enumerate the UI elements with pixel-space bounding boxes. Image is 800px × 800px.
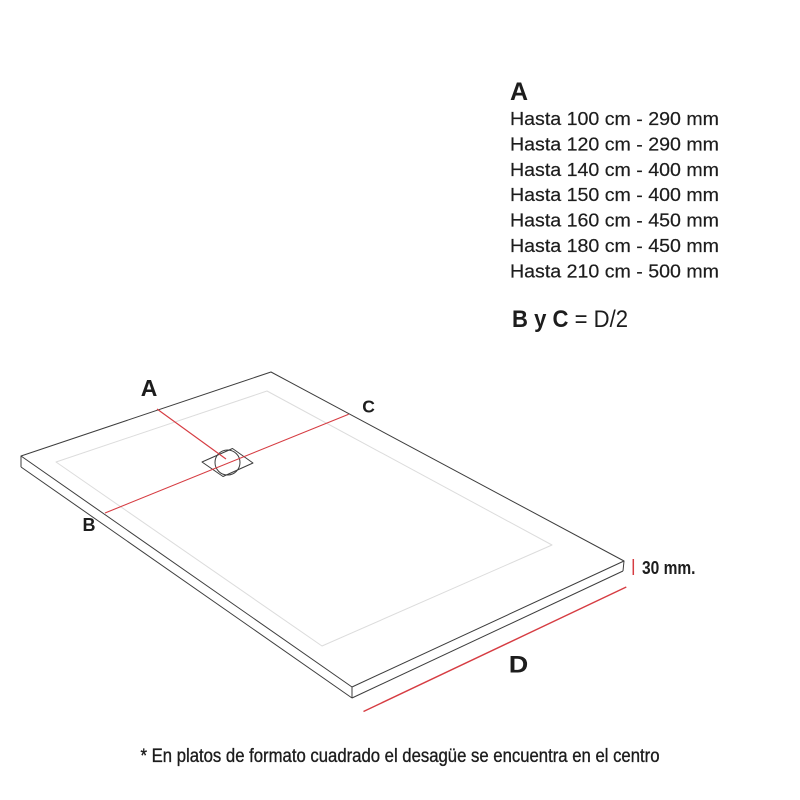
svg-text:Hasta 120 cm - 290 mm: Hasta 120 cm - 290 mm [510, 133, 719, 154]
svg-text:A: A [141, 375, 158, 401]
svg-text:Hasta 210 cm - 500 mm: Hasta 210 cm - 500 mm [510, 260, 719, 281]
svg-text:D: D [509, 652, 529, 679]
svg-text:B y C = D/2: B y C = D/2 [512, 306, 628, 333]
svg-text:Hasta 160 cm - 450 mm: Hasta 160 cm - 450 mm [510, 210, 719, 231]
svg-text:* En platos de formato cuadrad: * En platos de formato cuadrado el desag… [141, 746, 660, 767]
svg-text:A: A [510, 78, 528, 106]
svg-text:Hasta 180 cm - 450 mm: Hasta 180 cm - 450 mm [510, 235, 719, 256]
svg-text:C: C [362, 397, 375, 417]
svg-text:B: B [83, 515, 96, 535]
svg-text:Hasta 140 cm - 400 mm: Hasta 140 cm - 400 mm [510, 159, 719, 180]
svg-text:Hasta 100 cm - 290 mm: Hasta 100 cm - 290 mm [510, 108, 719, 129]
svg-text:30 mm.: 30 mm. [642, 558, 696, 578]
svg-text:Hasta 150 cm - 400 mm: Hasta 150 cm - 400 mm [510, 184, 719, 205]
